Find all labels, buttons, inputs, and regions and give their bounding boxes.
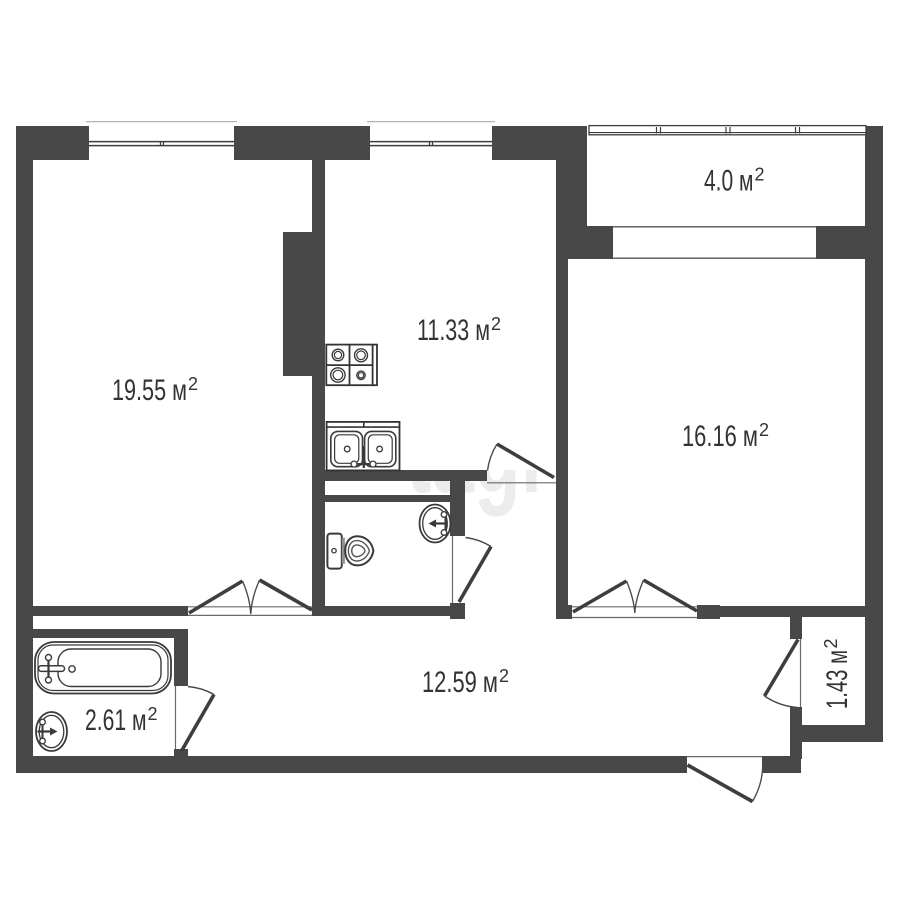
svg-text:19.55 м: 19.55 м: [112, 374, 187, 407]
svg-text:2: 2: [821, 638, 841, 648]
svg-text:2: 2: [188, 374, 198, 394]
svg-text:1.43 м: 1.43 м: [821, 650, 854, 709]
svg-text:2: 2: [491, 314, 501, 334]
svg-text:16.16 м: 16.16 м: [682, 420, 758, 453]
svg-text:2: 2: [499, 666, 509, 686]
svg-text:11.33 м: 11.33 м: [417, 314, 490, 347]
svg-text:2: 2: [759, 420, 769, 440]
svg-text:4.0 м: 4.0 м: [704, 165, 754, 198]
svg-text:2: 2: [148, 704, 158, 724]
svg-text:12.59 м: 12.59 м: [422, 666, 498, 699]
svg-text:2.61 м: 2.61 м: [85, 704, 147, 737]
svg-text:2: 2: [755, 165, 765, 185]
